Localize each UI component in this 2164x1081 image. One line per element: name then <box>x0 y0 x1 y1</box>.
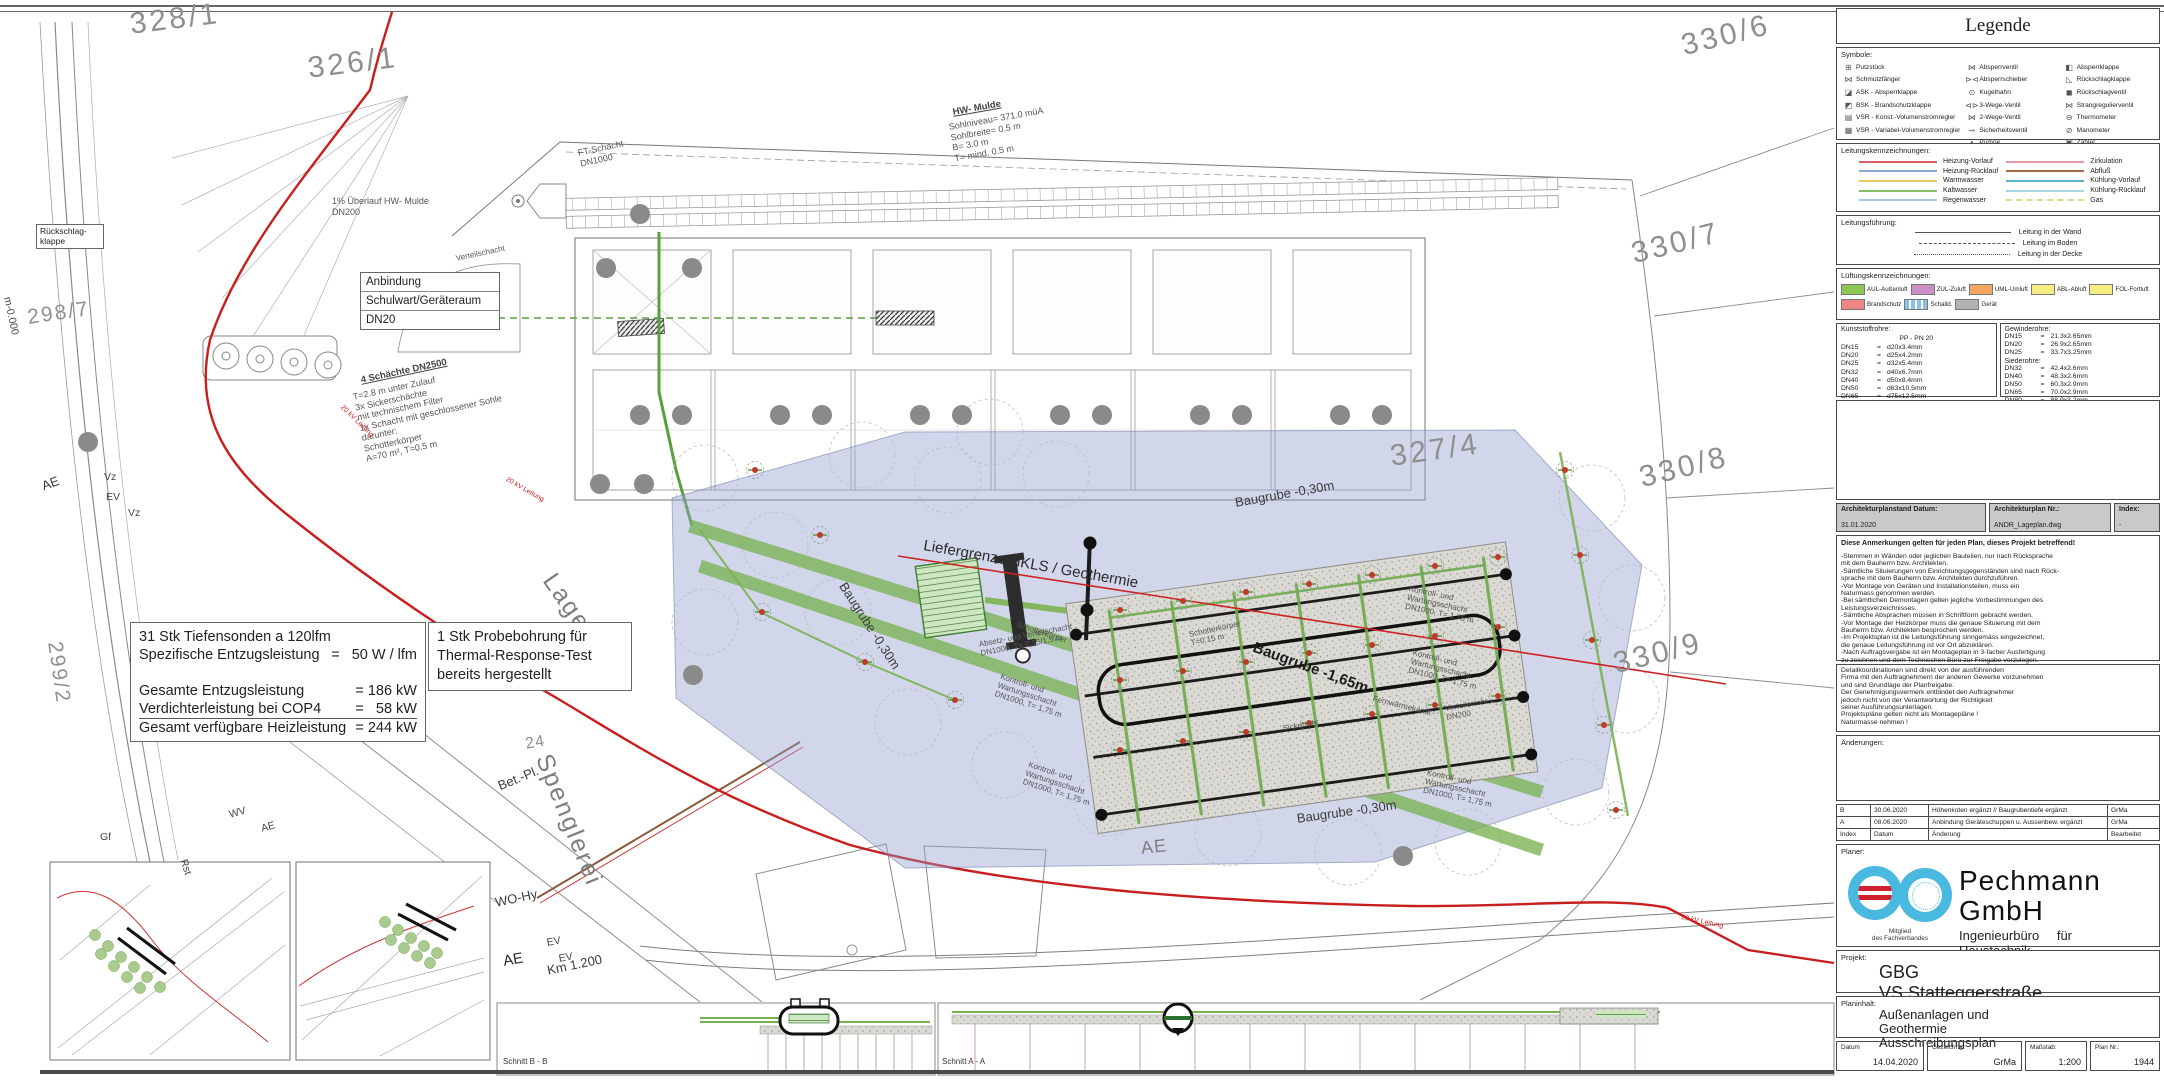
pipe-dn: DN25 <box>1841 360 1871 368</box>
note-line: -Vor Montage der Heizkörper muss die gen… <box>1841 620 2155 627</box>
planner-label: Planer: <box>1841 847 2155 856</box>
notes-title: Diese Anmerkungen gelten für jeden Plan,… <box>1841 538 2155 547</box>
content-line: Außenanlagen und <box>1879 1008 2155 1022</box>
note-line: die genaue Leitungsführung ist vor Ort a… <box>1841 642 2155 649</box>
pipe-eq: = <box>1871 377 1887 385</box>
vent-name: FOL-Fortluft <box>2115 286 2148 293</box>
line-marking-item: Warmwasser <box>1859 176 1998 186</box>
line-marking-item: Heizung-Rücklauf <box>1859 167 1998 177</box>
note-line: Naturmass genommen werden. <box>1841 590 2155 597</box>
pipe-row: DN25 = 33.7x3.25mm <box>2005 349 2156 357</box>
legend-symbol-label: 3-Wege-Ventil <box>1979 102 2020 109</box>
sonden-row-value: = 244 kW <box>355 719 417 737</box>
rev-header-date: Datum <box>1871 829 1929 841</box>
footer-plannr-value: 1944 <box>2134 1057 2154 1067</box>
note-line: -Im Projektsplan ist die Leitungsführung… <box>1841 634 2155 641</box>
legend-symbol-icon: ⊞ <box>1841 63 1856 72</box>
line-marking-name: Abfluß <box>2090 168 2110 175</box>
pipe-eq: = <box>1871 360 1887 368</box>
legend-symbol-icon: ▦ <box>1841 126 1856 135</box>
footer-scale-cell: Maßstab: 1:200 <box>2025 1041 2087 1071</box>
coordination-line: Detailkoordinationen sind direkt von der… <box>1841 667 2155 674</box>
legend-symbol-label: Absperrventil <box>1979 64 2017 71</box>
notes-lines: -Stemmen in Wänden oder jeglichen Bautei… <box>1841 553 2155 664</box>
threaded-pipes-title: Gewinderohre: <box>2005 326 2156 333</box>
pipe-dn: DN40 <box>1841 377 1871 385</box>
project-label: Projekt: <box>1841 953 2155 962</box>
legend-symbol-icon: ⋈ <box>1964 63 1979 72</box>
footer-drawn-value: GrMa <box>1994 1057 2017 1067</box>
planner-box: Planer: Mitglied des Fachverbandes <box>1836 844 2160 947</box>
pipe-eq: = <box>1871 385 1887 393</box>
vent-swatch <box>1841 284 1865 295</box>
legend-symbol-label: Manometer <box>2077 127 2110 134</box>
content-box: Planinhalt: Außenanlagen undGeothermieAu… <box>1836 996 2160 1038</box>
sonden-row-label: Spezifische Entzugsleistung <box>139 646 331 664</box>
vent-item: UML-Umluft <box>1969 284 2028 295</box>
legend-symbol-label: Absperrklappe <box>2077 64 2120 71</box>
pipe-eq: = <box>2035 365 2051 373</box>
symbols-col3: ◧ Absperrklappe ◺ Rückschlagklappe ◼ Rüc… <box>2062 61 2155 149</box>
footer-date-cell: Datum 14.04.2020 <box>1836 1041 1924 1071</box>
pipe-eq: = <box>2035 381 2051 389</box>
line-sample <box>2006 199 2084 201</box>
legend-symbol-label: BSK - Brandschutzklappe <box>1856 102 1931 109</box>
pipe-dn: DN20 <box>1841 352 1871 360</box>
legend-symbol-label: Sicherheitsventil <box>1979 127 2027 134</box>
line-markings-right: Zirkulation Abfluß Kühlung-Vorlauf Kühlu… <box>2006 157 2145 205</box>
rev-index: B <box>1837 805 1871 817</box>
content-line: Geothermie <box>1879 1022 2155 1036</box>
sonden-row: Gesamt verfügbare Heizleistung = 244 kW <box>139 719 417 737</box>
coordination-line: Firma mit den Auftragnehmern der anderen… <box>1841 674 2155 681</box>
legend-symbol-icon: ⊙ <box>1964 88 1979 97</box>
pipe-size: d32x5.4mm <box>1887 360 1923 368</box>
coordination-line: Der Genehmigungsvermerk entbindet den Au… <box>1841 689 2155 696</box>
legend-symbol-item: ⊞ Putzstück <box>1841 61 1960 74</box>
line-marking-item: Kühlung-Rücklauf <box>2006 186 2145 196</box>
symbols-label: Symbole: <box>1841 50 2155 59</box>
legend-symbol-label: Putzstück <box>1856 64 1885 71</box>
anbindung-callout: AnbindungSchulwart/GeräteraumDN20 <box>360 272 500 330</box>
probebohrung-box: 1 Stk Probebohrung fürThermal-Response-T… <box>428 622 632 691</box>
schacht-row <box>203 336 341 380</box>
austria-tb-logo <box>1848 866 1902 920</box>
routing-line-sample <box>1915 232 2011 233</box>
legend-symbol-item: ⊙ Kugelhahn <box>1964 86 2057 99</box>
legend-symbol-item: ◺ Rückschlagklappe <box>2062 74 2155 87</box>
footer-date-label: Datum <box>1841 1044 1919 1051</box>
note-line: -Vor Montage von Geräten und Installatio… <box>1841 583 2155 590</box>
probebohrung-line: Thermal-Response-Test <box>437 647 623 666</box>
threaded-pipes-rows: DN15 = 21.3x2.65mm DN20 = 26.9x2.65mm DN… <box>2005 333 2156 358</box>
legend-symbol-item: ◪ ASK - Absperrklappe <box>1841 86 1960 99</box>
legend-symbol-label: Absperrschieber <box>1979 76 2027 83</box>
project-line1: GBG <box>1879 962 2155 983</box>
pipe-row: DN50 = d63x10.5mm <box>1841 385 1992 393</box>
note-line: mit dem Bauherrn bzw. Architekten. <box>1841 560 2155 567</box>
symbols-col2: ⋈ Absperrventil ⊳⊲ Absperrschieber ⊙ Kug… <box>1964 61 2057 149</box>
legend-symbol-icon: ◺ <box>2062 75 2077 84</box>
empty-box <box>1836 400 2160 500</box>
vent-name: ZUL-Zuluft <box>1937 286 1966 293</box>
legend-symbol-label: Rückschlagklappe <box>2077 76 2131 83</box>
vent-item: ABL-Abluft <box>2031 284 2087 295</box>
site-plan: 328/1326/1330/6330/7330/8330/9327/4298/7… <box>0 0 1836 1081</box>
project-box: Projekt: GBG VS Statteggerstraße <box>1836 950 2160 993</box>
pipe-row: DN40 = 48.3x2.6mm <box>2005 373 2156 381</box>
vent-swatch <box>1841 299 1865 310</box>
line-sample <box>2006 161 2084 163</box>
rev-change: Höhenkoten ergänzt // Baugrubentiefe erg… <box>1929 805 2108 817</box>
rev-header-by: Bearbeitet <box>2108 829 2160 841</box>
coordination-line: Naturmasse nehmen ! <box>1841 719 2155 726</box>
note-line: -Sämtliche Absprachen müssen in Schriftf… <box>1841 612 2155 619</box>
legend-symbol-item: ◼ Rückschlagventil <box>2062 86 2155 99</box>
pipe-dn: DN50 <box>1841 385 1871 393</box>
pipe-size: 60.3x2.9mm <box>2051 381 2088 389</box>
line-markings-label: Leitungskennzeichnungen: <box>1841 146 2155 155</box>
sonden-data-box: 31 Stk Tiefensonden a 120lfm Spezifische… <box>130 622 426 742</box>
legend-symbol-icon: ⊸ <box>1964 126 1979 135</box>
routing-item: Leitung im Boden <box>1841 238 2155 249</box>
pipe-row: DN32 = 42.4x2.6mm <box>2005 365 2156 373</box>
footer-scale-value: 1:200 <box>2058 1057 2081 1067</box>
sonden-row-value: = 50 W / lfm <box>331 646 417 664</box>
legend-symbol-label: 2-Wege-Ventil <box>1979 114 2020 121</box>
line-marking-item: Zirkulation <box>2006 157 2145 167</box>
austria-flag-icon <box>1858 886 1892 900</box>
legend-symbol-item: ▤ VSR - Konst.-Volumenstromregler <box>1841 111 1960 124</box>
legend-symbol-icon: ▤ <box>1841 113 1856 122</box>
arch-plan-row: Architekturplanstand Datum: 31.01.2020 A… <box>1836 503 2160 532</box>
legend-symbol-label: Rückschlagventil <box>2077 89 2126 96</box>
line-marking-name: Regenwasser <box>1943 197 1986 204</box>
pipe-row: DN32 = d40x6.7mm <box>1841 369 1992 377</box>
pipe-row: DN20 = 26.9x2.65mm <box>2005 341 2156 349</box>
line-marking-item: Kühlung-Vorlauf <box>2006 176 2145 186</box>
pipe-dn: DN40 <box>2005 373 2035 381</box>
vent-swatch <box>1955 299 1979 310</box>
routing-line-sample <box>1919 243 2015 244</box>
changes-label: Änderungen: <box>1841 738 2155 747</box>
pipe-size: 21.3x2.65mm <box>2051 333 2092 341</box>
pipe-size: 33.7x3.25mm <box>2051 349 2092 357</box>
legend-symbol-item: ⊖ Thermometer <box>2062 111 2155 124</box>
vent-markings-box: Lüftungskennzeichnungen: AUL-Außenluft Z… <box>1836 268 2160 320</box>
routing-box: Leitungsführung: Leitung in der Wand Lei… <box>1836 215 2160 265</box>
line-sample <box>2006 190 2084 192</box>
vent-swatch <box>1904 299 1928 310</box>
legend-symbol-icon: ⊳⊲ <box>1964 75 1979 84</box>
arch-date-label: Architekturplanstand Datum: <box>1841 506 1981 513</box>
legend-symbol-label: Thermometer <box>2077 114 2117 121</box>
pipe-row: DN20 = d25x4.2mm <box>1841 352 1992 360</box>
eu-ingenieur-logo <box>1898 868 1952 922</box>
legend-symbol-item: ⊲⊳ 3-Wege-Ventil <box>1964 99 2057 112</box>
line-sample <box>2006 180 2084 182</box>
pipe-size: d25x4.2mm <box>1887 352 1923 360</box>
rev-header-index: Index <box>1837 829 1871 841</box>
line-sample <box>2006 170 2084 172</box>
probebohrung-line: bereits hergestellt <box>437 666 623 685</box>
pipe-row: DN15 = d20x3.4mm <box>1841 344 1992 352</box>
legend-symbol-label: Kugelhahn <box>1979 89 2011 96</box>
line-sample <box>1859 199 1937 201</box>
pipe-size: d40x6.7mm <box>1887 369 1923 377</box>
legend-symbol-item: ⋈ Strangregulierventil <box>2062 99 2155 112</box>
line-marking-item: Abfluß <box>2006 167 2145 177</box>
coordination-lines: Detailkoordinationen sind direkt von der… <box>1841 667 2155 726</box>
duct-node <box>1081 604 1094 617</box>
anbindung-line: Anbindung <box>361 273 499 292</box>
note-line: zu zeichnen und dem Technischen Büro zur… <box>1841 657 2155 664</box>
arch-index-value: - <box>2119 522 2155 529</box>
sonden-row-value: = 186 kW <box>355 682 417 700</box>
pipe-tables: Kunststoffrohre: PP - PN 20 DN15 = d20x3… <box>1836 323 2160 397</box>
vent-swatch <box>1911 284 1935 295</box>
line-markings-left: Heizung-Vorlauf Heizung-Rücklauf Warmwas… <box>1859 157 1998 205</box>
legend-symbol-item: ⊸ Sicherheitsventil <box>1964 124 2057 137</box>
note-line: -Nach Auftragsvergabe ist ein Montagepla… <box>1841 649 2155 656</box>
vent-label: Lüftungskennzeichnungen: <box>1841 271 2155 280</box>
vent-item: Gerät <box>1955 299 1996 310</box>
legend-symbol-label: VSR - Konst.-Volumenstromregler <box>1856 114 1955 121</box>
legend-symbol-icon: ◧ <box>2062 63 2077 72</box>
vent-name: ABL-Abluft <box>2057 286 2087 293</box>
eu-stars-icon <box>1912 882 1940 910</box>
sonden-row-label: 31 Stk Tiefensonden a 120lfm <box>139 628 417 646</box>
pipe-dn: DN50 <box>2005 381 2035 389</box>
legend-symbol-item: ⋈ 2-Wege-Ventil <box>1964 111 2057 124</box>
pipe-eq: = <box>2035 333 2051 341</box>
legend-symbol-item: ⊳⊲ Absperrschieber <box>1964 74 2057 87</box>
pipe-size: d63x10.5mm <box>1887 385 1926 393</box>
sonden-row <box>139 664 417 682</box>
pipe-row: DN65 = 70.0x2.9mm <box>2005 389 2156 397</box>
line-markings-box: Leitungskennzeichnungen: Heizung-Vorlauf… <box>1836 143 2160 212</box>
coordination-line: seiner Ausführungsunterlagen. <box>1841 704 2155 711</box>
pipe-dn: DN25 <box>2005 349 2035 357</box>
pipe-dn: DN15 <box>2005 333 2035 341</box>
line-marking-name: Kühlung-Rücklauf <box>2090 187 2145 194</box>
line-marking-item: Kaltwasser <box>1859 186 1998 196</box>
sonden-row: Gesamte Entzugsleistung = 186 kW <box>139 682 417 700</box>
line-marking-name: Warmwasser <box>1943 177 1984 184</box>
legend-symbol-label: Strangregulierventil <box>2077 102 2134 109</box>
note-line: -Stemmen in Wänden oder jeglichen Bautei… <box>1841 553 2155 560</box>
rev-date: 30.06.2020 <box>1871 805 1929 817</box>
legend-symbol-label: Schmutzfänger <box>1856 76 1900 83</box>
coordination-line: Projektspläne gelten nicht als Montagepl… <box>1841 711 2155 718</box>
sonden-row: Spezifische Entzugsleistung = 50 W / lfm <box>139 646 417 664</box>
line-marking-name: Heizung-Vorlauf <box>1943 158 1993 165</box>
symbols-col1: ⊞ Putzstück ⋈ Schmutzfänger ◪ ASK - Absp… <box>1841 61 1960 149</box>
duct-node <box>1084 537 1097 550</box>
pipe-row: DN50 = 60.3x2.9mm <box>2005 381 2156 389</box>
pipe-row: DN40 = d50x8.4mm <box>1841 377 1992 385</box>
vent-row2: Brandschutz Schalld. Gerät <box>1841 299 2155 310</box>
routing-name: Leitung in der Wand <box>2019 229 2081 236</box>
rev-index: A <box>1837 817 1871 829</box>
hw-mulde-strip <box>512 178 1558 229</box>
arch-date-value: 31.01.2020 <box>1841 522 1981 529</box>
rev-date: 08.06.2020 <box>1871 817 1929 829</box>
pipe-dn: DN32 <box>1841 369 1871 377</box>
line-marking-name: Gas <box>2090 197 2103 204</box>
legend-symbol-item: ⊘ Manometer <box>2062 124 2155 137</box>
rev-change: Anbindung Geräteschuppen u. Aussenbew. e… <box>1929 817 2108 829</box>
pipe-size: d20x3.4mm <box>1887 344 1923 352</box>
rev-by: GrMa <box>2108 805 2160 817</box>
pipe-dn: DN32 <box>2005 365 2035 373</box>
footer-plannr-label: Plan Nr.: <box>2095 1044 2155 1051</box>
vent-item: AUL-Außenluft <box>1841 284 1908 295</box>
threaded-pipes-box: Gewinderohre: DN15 = 21.3x2.65mm DN20 = … <box>2000 323 2161 397</box>
legend-symbol-item: ⋈ Absperrventil <box>1964 61 2057 74</box>
probebohrung-line: 1 Stk Probebohrung für <box>437 628 623 647</box>
rev-by: GrMa <box>2108 817 2160 829</box>
pipe-dn: DN20 <box>2005 341 2035 349</box>
pipe-row: DN25 = d32x5.4mm <box>1841 360 1992 368</box>
pipe-eq: = <box>1871 352 1887 360</box>
footer-date-value: 14.04.2020 <box>1873 1057 1918 1067</box>
legend-symbol-icon: ⋈ <box>2062 101 2077 110</box>
legend-symbol-icon: ⊖ <box>2062 113 2077 122</box>
pipe-eq: = <box>2035 389 2051 397</box>
coordination-line: jedoch nicht von der Verantwortung der R… <box>1841 697 2155 704</box>
arch-nr-value: ANDR_Lageplan.dwg <box>1994 522 2106 529</box>
sonden-row-label: Verdichterleistung bei COP4 <box>139 700 355 718</box>
pipe-size: 70.0x2.9mm <box>2051 389 2088 397</box>
pipe-eq: = <box>1871 369 1887 377</box>
footer-drawn-label: Gezeichnet <box>1932 1044 2017 1051</box>
pipe-size: 42.4x2.6mm <box>2051 365 2088 373</box>
changes-box: Änderungen: <box>1836 735 2160 801</box>
sonden-row-label: Gesamt verfügbare Heizleistung <box>139 719 355 737</box>
vent-name: UML-Umluft <box>1995 286 2028 293</box>
legend-symbol-icon: ⋈ <box>1964 113 1979 122</box>
arch-nr-label: Architekturplan Nr.: <box>1994 506 2106 513</box>
pipe-size: d50x8.4mm <box>1887 377 1923 385</box>
vent-name: Schalld. <box>1930 301 1952 308</box>
pipe-size: 26.9x2.65mm <box>2051 341 2092 349</box>
note-line: Bauherrn bzw. Architekten besprochen wer… <box>1841 627 2155 634</box>
note-line: -Sämtliche Situierungen von Einrichtungs… <box>1841 568 2155 575</box>
line-marking-name: Heizung-Rücklauf <box>1943 168 1998 175</box>
vent-item: Brandschutz <box>1841 299 1901 310</box>
line-marking-item: Regenwasser <box>1859 195 1998 205</box>
line-sample <box>1859 161 1937 163</box>
vent-name: AUL-Außenluft <box>1867 286 1908 293</box>
coordination-line: und sind Grundlage der Planfreigabe. <box>1841 682 2155 689</box>
plastic-pipes-title: Kunststoffrohre: <box>1841 326 1992 333</box>
pipe-dn: DN15 <box>1841 344 1871 352</box>
sonden-row-value: = 58 kW <box>355 700 417 718</box>
legend-symbol-item: ◩ BSK - Brandschutzklappe <box>1841 99 1960 112</box>
pipe-dn: DN65 <box>2005 389 2035 397</box>
pipe-eq: = <box>2035 341 2051 349</box>
anbindung-line: DN20 <box>361 311 499 329</box>
notes-box: Diese Anmerkungen gelten für jeden Plan,… <box>1836 535 2160 661</box>
legend-symbol-label: ASK - Absperrklappe <box>1856 89 1917 96</box>
coordination-box: Detailkoordinationen sind direkt von der… <box>1836 664 2160 732</box>
sonden-row: 31 Stk Tiefensonden a 120lfm <box>139 628 417 646</box>
vent-row1: AUL-Außenluft ZUL-Zuluft UML-Umluft ABL-… <box>1841 284 2155 295</box>
legend-symbol-icon: ⊲⊳ <box>1964 101 1979 110</box>
legend-symbol-icon: ◼ <box>2062 88 2077 97</box>
pipe-size: 48.3x2.6mm <box>2051 373 2088 381</box>
note-line: Leistungsverzeichnisses. <box>1841 605 2155 612</box>
footer-plannr-cell: Plan Nr.: 1944 <box>2090 1041 2160 1071</box>
routing-label: Leitungsführung: <box>1841 218 2155 227</box>
routing-list: Leitung in der Wand Leitung im Boden Lei… <box>1841 227 2155 260</box>
legend-symbols-box: Symbole: ⊞ Putzstück ⋈ Schmutzfänger ◪ A… <box>1836 47 2160 140</box>
footer-scale-label: Maßstab: <box>2030 1044 2082 1051</box>
vent-name: Gerät <box>1981 301 1996 308</box>
routing-name: Leitung im Boden <box>2023 240 2077 247</box>
routing-item: Leitung in der Wand <box>1841 227 2155 238</box>
vent-swatch <box>2031 284 2055 295</box>
vent-swatch <box>2089 284 2113 295</box>
legend-title: Legende <box>1841 11 2155 42</box>
line-marking-item: Gas <box>2006 195 2145 205</box>
rueckschlagklappe-callout: Rückschlag- klappe <box>36 224 104 249</box>
pipe-eq: = <box>2035 373 2051 381</box>
legend-symbol-icon: ◪ <box>1841 88 1856 97</box>
boiler-pipes-title: Siederohre: <box>2005 358 2156 365</box>
arch-index-cell: Index: - <box>2114 503 2160 532</box>
arch-nr-cell: Architekturplan Nr.: ANDR_Lageplan.dwg <box>1989 503 2111 532</box>
routing-name: Leitung in der Decke <box>2018 251 2082 258</box>
footer-row: Datum 14.04.2020 Gezeichnet GrMa Maßstab… <box>1836 1041 2160 1071</box>
rev-header-change: Änderung <box>1929 829 2108 841</box>
sonden-row: Verdichterleistung bei COP4 = 58 kW <box>139 700 417 719</box>
sonden-row-label <box>139 664 417 682</box>
anbindung-line: Schulwart/Geräteraum <box>361 292 499 311</box>
legend-symbol-item: ◧ Absperrklappe <box>2062 61 2155 74</box>
line-sample <box>1859 190 1937 192</box>
membership-note: Mitglied des Fachverbandes <box>1841 928 1959 943</box>
note-line: -Bei sämtlichen Demontagen gelten jeglic… <box>1841 597 2155 604</box>
legend-symbol-icon: ⊘ <box>2062 126 2077 135</box>
sonden-row-label: Gesamte Entzugsleistung <box>139 682 355 700</box>
plastic-pipes-box: Kunststoffrohre: PP - PN 20 DN15 = d20x3… <box>1836 323 1997 397</box>
legend-symbol-icon: ◩ <box>1841 101 1856 110</box>
section-panels <box>497 999 1834 1075</box>
legend-symbol-icon: ⋈ <box>1841 75 1856 84</box>
line-sample <box>1859 180 1937 182</box>
vent-swatch <box>1969 284 1993 295</box>
arch-index-label: Index: <box>2119 506 2155 513</box>
footer-drawn-cell: Gezeichnet GrMa <box>1927 1041 2022 1071</box>
arch-date-cell: Architekturplanstand Datum: 31.01.2020 <box>1836 503 1986 532</box>
company-name: Pechmann GmbH <box>1959 866 2155 926</box>
line-marking-item: Heizung-Vorlauf <box>1859 157 1998 167</box>
vent-name: Brandschutz <box>1867 301 1901 308</box>
routing-item: Leitung in der Decke <box>1841 249 2155 260</box>
plan-sheet: 328/1326/1330/6330/7330/8330/9327/4298/7… <box>0 0 2164 1081</box>
line-sample <box>1859 170 1937 172</box>
line-marking-name: Zirkulation <box>2090 158 2122 165</box>
legend-symbol-item: ▦ VSR - Variabel-Volumenstromregler <box>1841 124 1960 137</box>
title-block-panel: Legende Symbole: ⊞ Putzstück ⋈ Schmutzfä… <box>1836 8 2160 1071</box>
legend-symbol-item: ⋈ Schmutzfänger <box>1841 74 1960 87</box>
inset-maps <box>50 862 490 1060</box>
plastic-pipes-sub: PP - PN 20 <box>1841 335 1992 342</box>
legend-symbol-label: VSR - Variabel-Volumenstromregler <box>1856 127 1960 134</box>
line-marking-name: Kühlung-Vorlauf <box>2090 177 2140 184</box>
